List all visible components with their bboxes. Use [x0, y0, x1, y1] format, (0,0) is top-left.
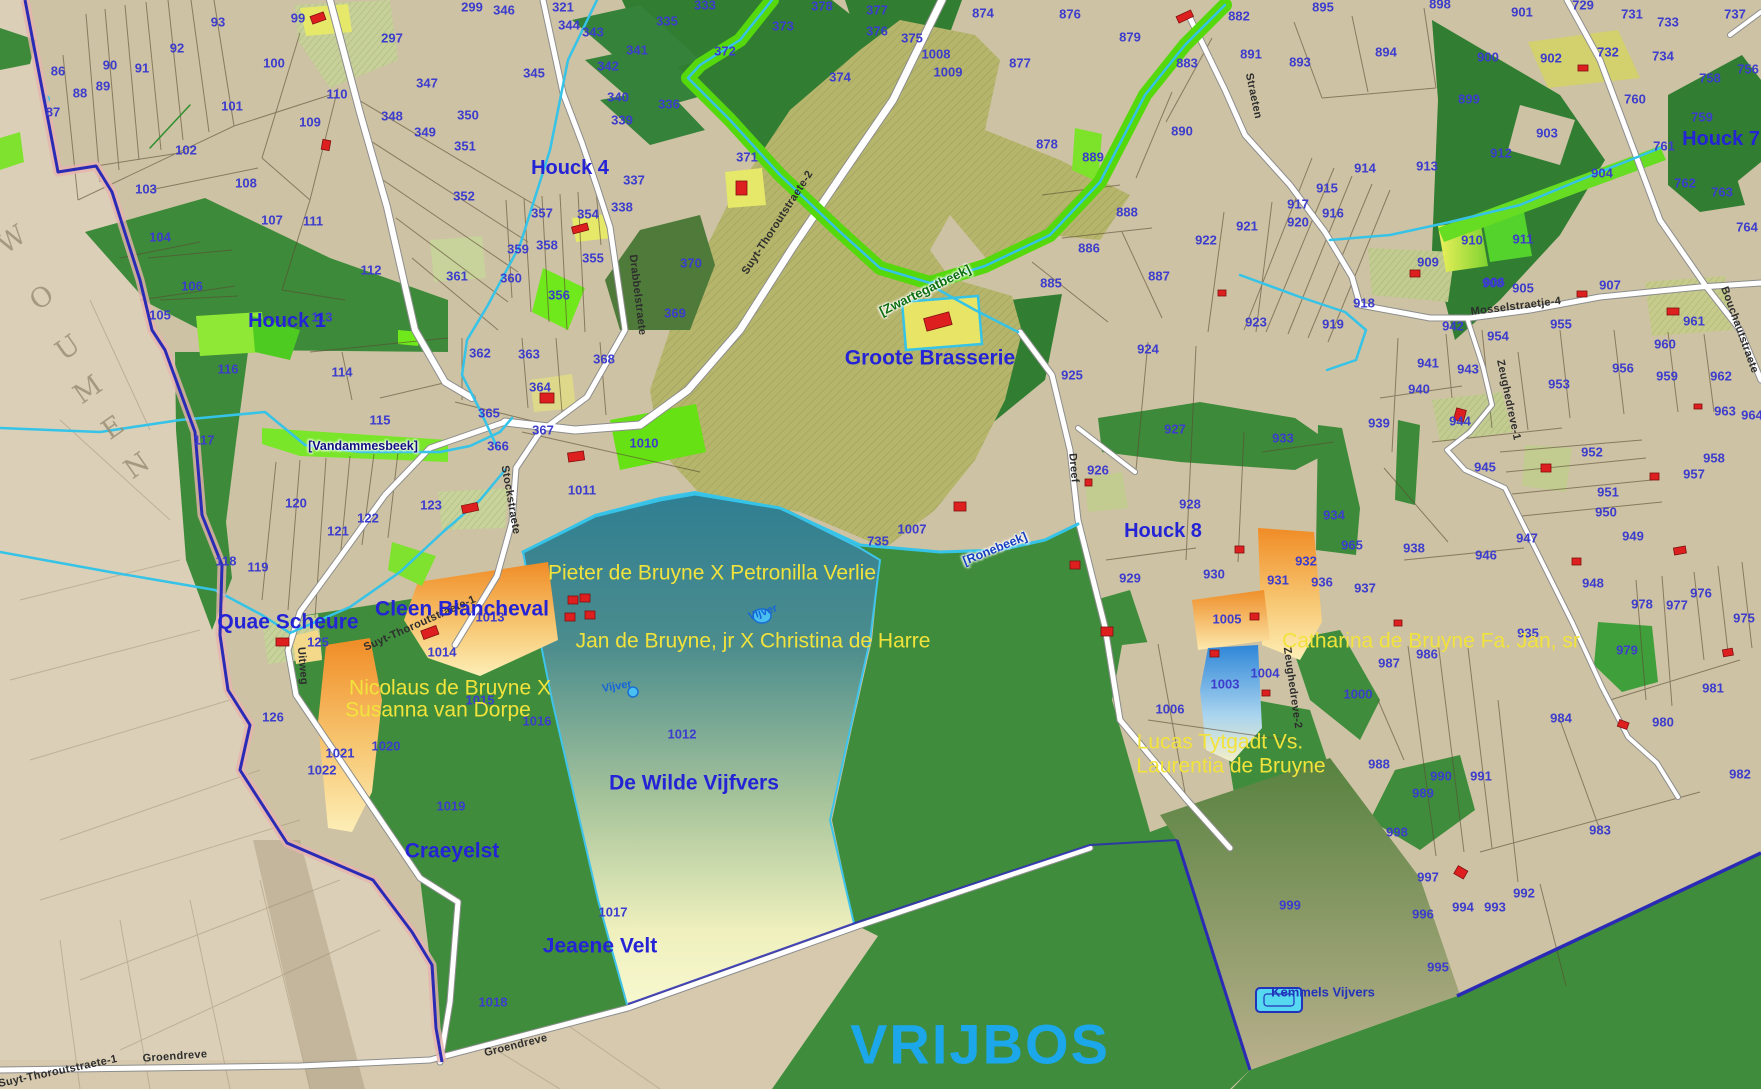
map-canvas — [0, 0, 1761, 1089]
cadastral-map-viewport[interactable]: WOUMEN 868788899091929399100101102103104… — [0, 0, 1761, 1089]
region-title: VRIJBOS — [850, 1012, 1110, 1077]
